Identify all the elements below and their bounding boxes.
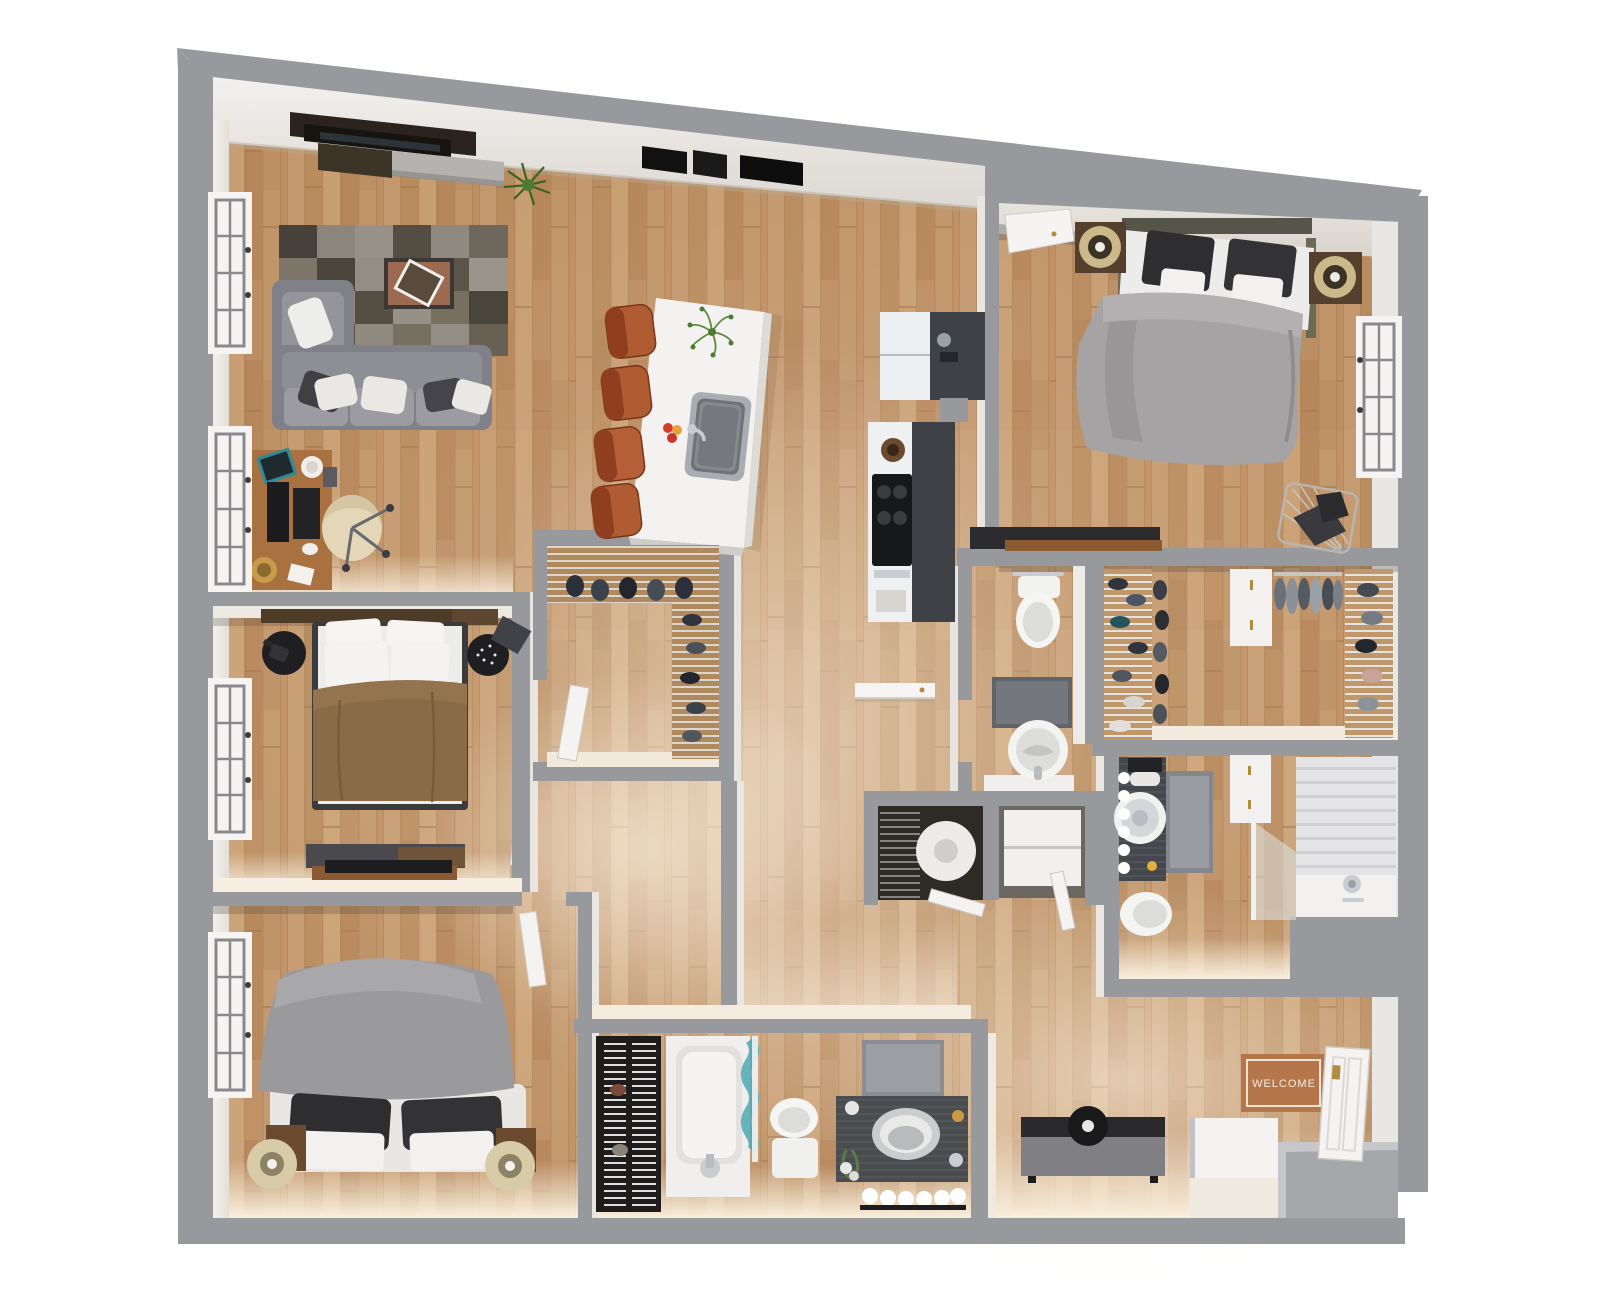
svg-text:WELCOME: WELCOME (1252, 1078, 1316, 1090)
